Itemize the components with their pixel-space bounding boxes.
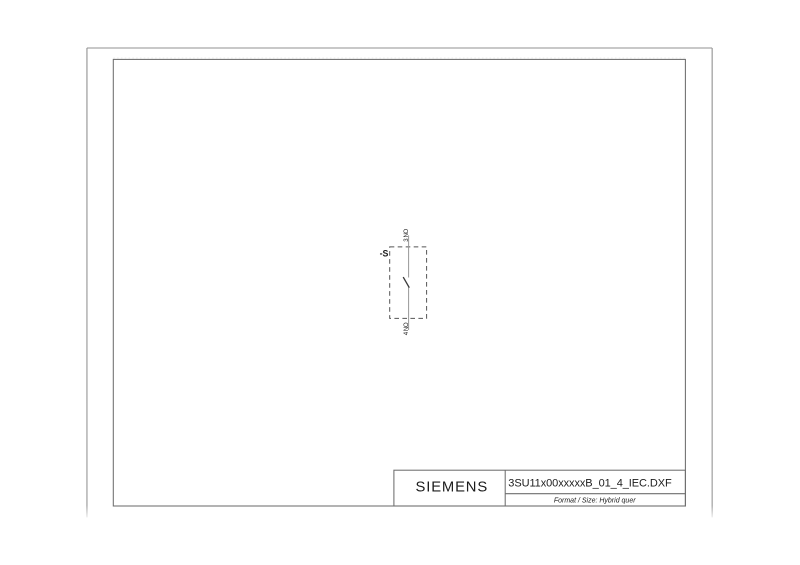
svg-text:3 NO: 3 NO <box>403 229 410 242</box>
svg-text:4 NO: 4 NO <box>403 322 410 335</box>
svg-text:SIEMENS: SIEMENS <box>416 479 489 495</box>
svg-text:Format / Size: Hybrid quer: Format / Size: Hybrid quer <box>554 498 636 505</box>
svg-text:-S: -S <box>380 249 389 259</box>
svg-text:3SU11x00xxxxxB_01_4_IEC.DXF: 3SU11x00xxxxxB_01_4_IEC.DXF <box>508 477 672 489</box>
